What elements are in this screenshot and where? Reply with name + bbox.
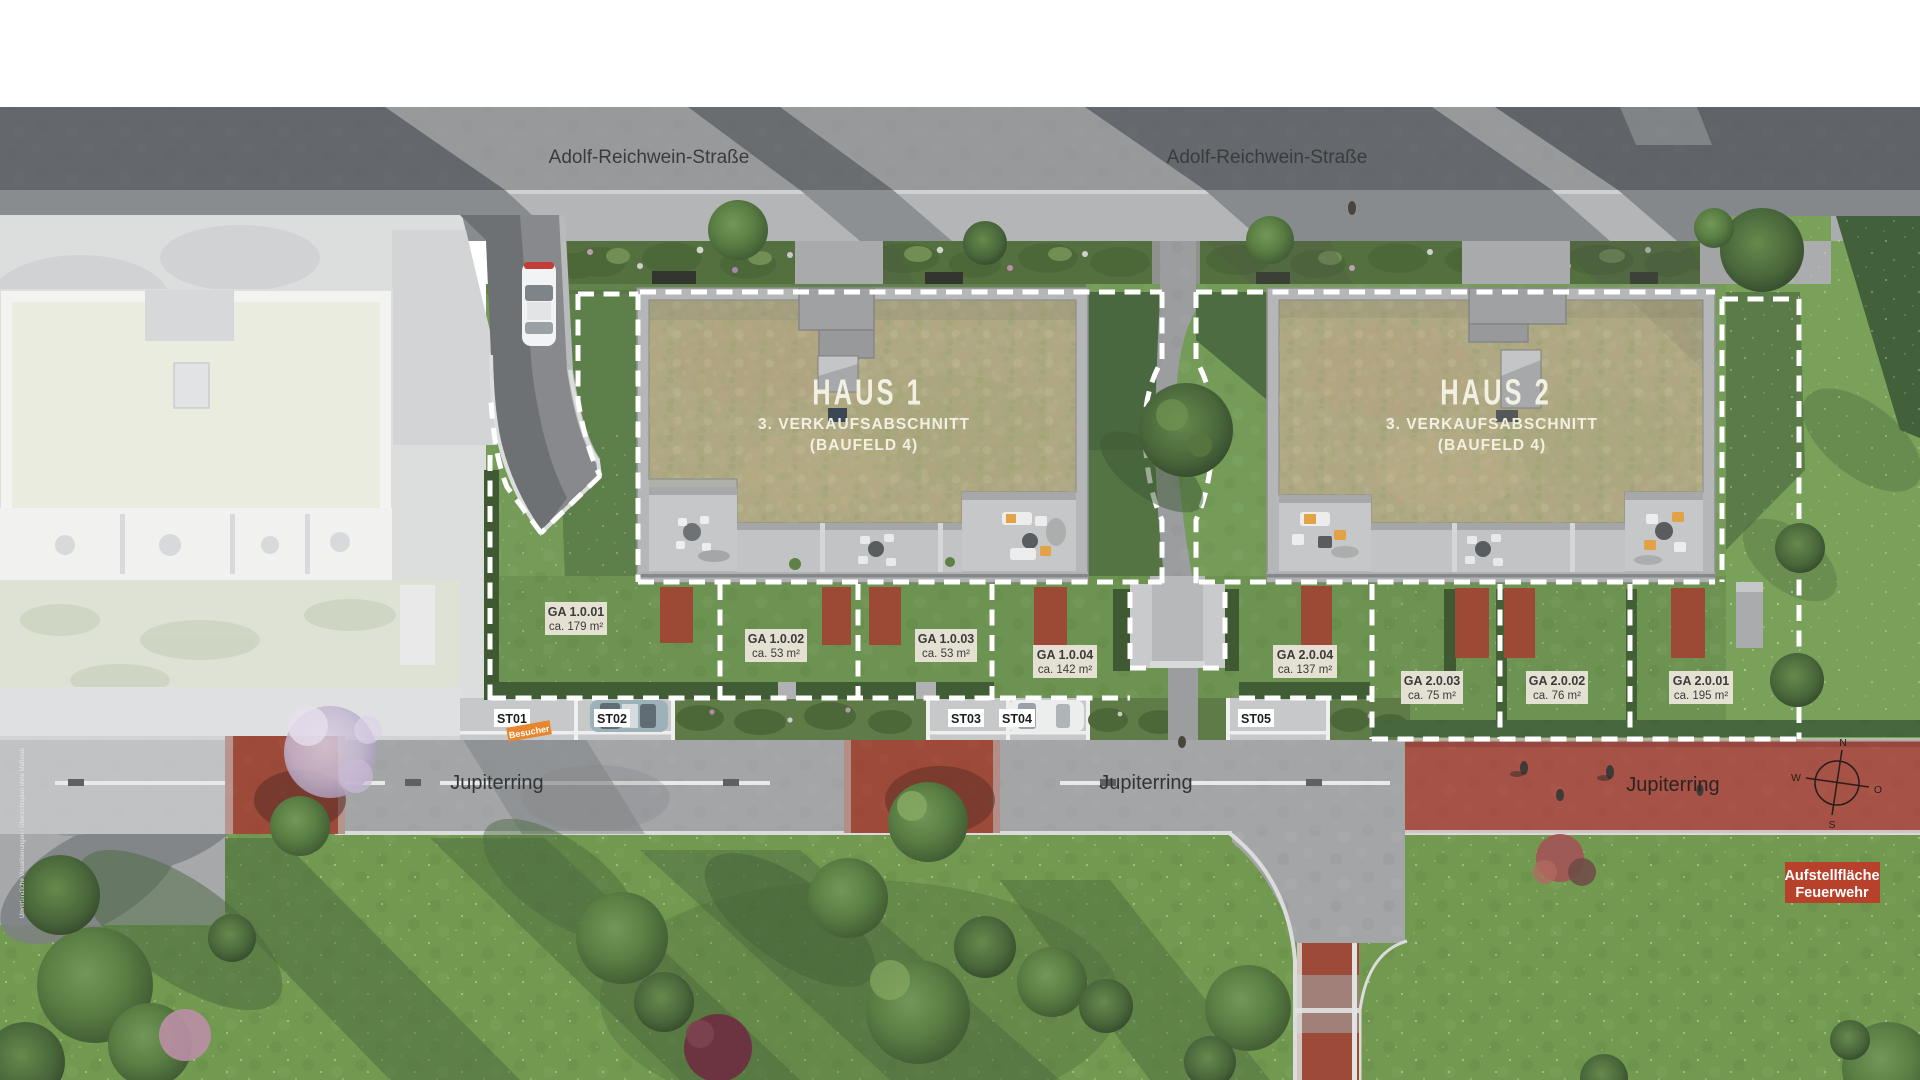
svg-text:GA 2.0.01: GA 2.0.01 [1673, 674, 1730, 688]
svg-text:(BAUFELD 4): (BAUFELD 4) [1438, 437, 1546, 454]
svg-text:HAUS 1: HAUS 1 [812, 372, 924, 412]
svg-text:Feuerwehr: Feuerwehr [1795, 885, 1869, 901]
svg-text:ca. 75 m²: ca. 75 m² [1408, 690, 1456, 702]
svg-text:ca. 53 m²: ca. 53 m² [752, 648, 800, 660]
svg-text:ST04: ST04 [1002, 712, 1032, 726]
svg-text:GA 1.0.02: GA 1.0.02 [748, 632, 805, 646]
svg-text:ca. 76 m²: ca. 76 m² [1533, 690, 1581, 702]
svg-text:S: S [1828, 819, 1835, 831]
svg-text:3. VERKAUFSABSCHNITT: 3. VERKAUFSABSCHNITT [758, 416, 970, 433]
svg-text:ca. 137 m²: ca. 137 m² [1278, 664, 1332, 676]
svg-text:Aufstellfläche: Aufstellfläche [1784, 868, 1879, 884]
svg-text:GA 1.0.04: GA 1.0.04 [1037, 648, 1094, 662]
svg-text:ca. 179 m²: ca. 179 m² [549, 621, 603, 633]
svg-text:GA 2.0.03: GA 2.0.03 [1404, 674, 1461, 688]
svg-text:ST02: ST02 [597, 712, 627, 726]
svg-text:Adolf-Reichwein-Straße: Adolf-Reichwein-Straße [549, 147, 750, 168]
svg-text:ca. 195 m²: ca. 195 m² [1674, 690, 1728, 702]
svg-text:ca. 53 m²: ca. 53 m² [922, 648, 970, 660]
svg-text:Adolf-Reichwein-Straße: Adolf-Reichwein-Straße [1167, 147, 1368, 168]
svg-text:W: W [1791, 772, 1801, 784]
svg-text:Unverbindliche Visualisierunge: Unverbindliche Visualisierungen / Übersi… [19, 747, 26, 918]
svg-text:ST01: ST01 [497, 712, 527, 726]
svg-text:ca. 142 m²: ca. 142 m² [1038, 664, 1092, 676]
svg-text:3. VERKAUFSABSCHNITT: 3. VERKAUFSABSCHNITT [1386, 416, 1598, 433]
svg-text:GA 1.0.03: GA 1.0.03 [918, 632, 975, 646]
svg-text:GA 2.0.02: GA 2.0.02 [1529, 674, 1586, 688]
svg-text:Jupiterring: Jupiterring [450, 772, 543, 794]
svg-text:GA 2.0.04: GA 2.0.04 [1277, 648, 1334, 662]
svg-text:ST03: ST03 [951, 712, 981, 726]
svg-text:ST05: ST05 [1241, 712, 1271, 726]
svg-text:GA 1.0.01: GA 1.0.01 [548, 605, 605, 619]
svg-text:(BAUFELD 4): (BAUFELD 4) [810, 437, 918, 454]
svg-text:Jupiterring: Jupiterring [1626, 774, 1719, 796]
svg-text:Jupiterring: Jupiterring [1099, 772, 1192, 794]
svg-text:HAUS 2: HAUS 2 [1440, 372, 1552, 412]
svg-text:O: O [1874, 784, 1882, 796]
svg-text:N: N [1839, 737, 1847, 749]
